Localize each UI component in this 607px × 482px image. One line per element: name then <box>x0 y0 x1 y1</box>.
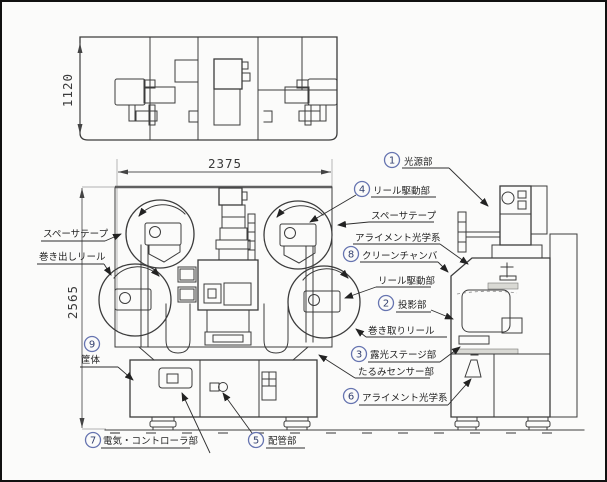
reel-lower-left <box>99 264 171 336</box>
controller-panel <box>159 368 192 388</box>
svg-text:巻き出しリール: 巻き出しリール <box>39 251 106 263</box>
callout-8-clean-chamber: 8 クリーンチャンバ <box>344 247 449 273</box>
svg-text:1: 1 <box>389 156 395 167</box>
light-source-head <box>492 186 547 258</box>
svg-text:アライメント光学系: アライメント光学系 <box>362 392 448 404</box>
label-spacer-tape-left: スペーサテープ <box>41 229 121 241</box>
svg-text:クリーンチャンバ: クリーンチャンバ <box>362 251 438 262</box>
dim-2375: 2375 <box>208 156 242 171</box>
side-feet <box>455 417 550 430</box>
chamfer-edges <box>139 347 308 360</box>
drawing-canvas: 1120 2375 2565 <box>2 2 607 482</box>
svg-text:リール駆動部: リール駆動部 <box>378 275 435 287</box>
dimension-top-depth: 1120 <box>60 43 80 134</box>
side-body <box>451 258 550 417</box>
dim-1120: 1120 <box>60 73 75 107</box>
svg-text:巻き取りリール: 巻き取りリール <box>368 325 435 337</box>
dimension-front-width: 2375 <box>117 156 332 332</box>
side-louver-panel <box>262 372 276 400</box>
rear-column <box>550 234 577 417</box>
tape-loop-right <box>264 304 288 353</box>
label-reel-drive-lower: リール駆動部 <box>345 275 435 298</box>
dim-2565: 2565 <box>65 285 80 319</box>
svg-text:アライメント光学系: アライメント光学系 <box>355 232 441 244</box>
svg-text:スペーサテープ: スペーサテープ <box>371 211 437 222</box>
top-view-left-reel-unit <box>115 60 198 125</box>
clean-chamber-interior <box>457 263 518 294</box>
svg-text:2: 2 <box>383 299 389 310</box>
svg-text:7: 7 <box>90 436 96 447</box>
callout-2-projection: 2 投影部 <box>379 296 454 320</box>
callout-1-light-source: 1 光源部 <box>385 153 489 207</box>
svg-text:スペーサテープ: スペーサテープ <box>43 229 109 240</box>
svg-text:投影部: 投影部 <box>398 299 427 311</box>
callout-9-enclosure: 9 筐体 <box>80 337 133 381</box>
svg-text:光源部: 光源部 <box>404 156 433 168</box>
svg-text:4: 4 <box>359 185 365 196</box>
reel-lower-right <box>288 266 360 338</box>
projection-unit-side <box>462 290 522 333</box>
svg-text:配管部: 配管部 <box>268 435 297 447</box>
top-view-right-reel-unit <box>285 79 337 125</box>
front-feet <box>150 417 310 430</box>
svg-text:8: 8 <box>348 250 354 261</box>
reel-upper-left <box>126 200 194 268</box>
callout-7-electrical-controller: 7 電気・コントローラ部 <box>86 393 211 453</box>
clamp-marks <box>189 111 272 122</box>
svg-text:9: 9 <box>89 340 95 351</box>
front-view <box>99 187 360 430</box>
ground-line <box>105 430 584 433</box>
engineering-drawing: 1120 2375 2565 <box>0 0 607 482</box>
callouts: スペーサテープ 巻き出しリール 9 筐体 7 電気・コントローラ部 5 配管部 <box>37 153 488 454</box>
alignment-optics-funnel <box>465 355 481 377</box>
svg-text:6: 6 <box>348 392 354 403</box>
svg-text:リール駆動部: リール駆動部 <box>373 185 430 197</box>
label-takeup-reel: 巻き取りリール <box>356 325 447 337</box>
svg-text:露光ステージ部: 露光ステージ部 <box>370 349 436 361</box>
label-unwind-reel: 巻き出しリール <box>37 251 111 275</box>
lower-cabinet <box>130 360 317 417</box>
svg-text:5: 5 <box>253 436 259 447</box>
svg-text:3: 3 <box>356 350 362 361</box>
top-view <box>80 37 337 140</box>
svg-text:電気・コントローラ部: 電気・コントローラ部 <box>103 435 198 447</box>
label-spacer-tape-right: スペーサテープ <box>338 211 437 225</box>
top-view-center-unit <box>214 59 250 125</box>
guide-post <box>458 212 500 252</box>
dimension-front-height: 2565 <box>65 187 114 429</box>
svg-text:たるみセンサー部: たるみセンサー部 <box>358 366 434 378</box>
callout-6-alignment-optics: 6 アライメント光学系 <box>344 379 472 405</box>
exposure-stage-side <box>451 336 550 354</box>
svg-text:筐体: 筐体 <box>81 354 101 366</box>
callout-3-exposure-stage: 3 露光ステージ部 <box>352 347 461 363</box>
reel-upper-right <box>264 201 332 269</box>
side-view <box>451 186 577 430</box>
piping-connector <box>210 383 228 392</box>
sensor-rod <box>248 214 255 260</box>
